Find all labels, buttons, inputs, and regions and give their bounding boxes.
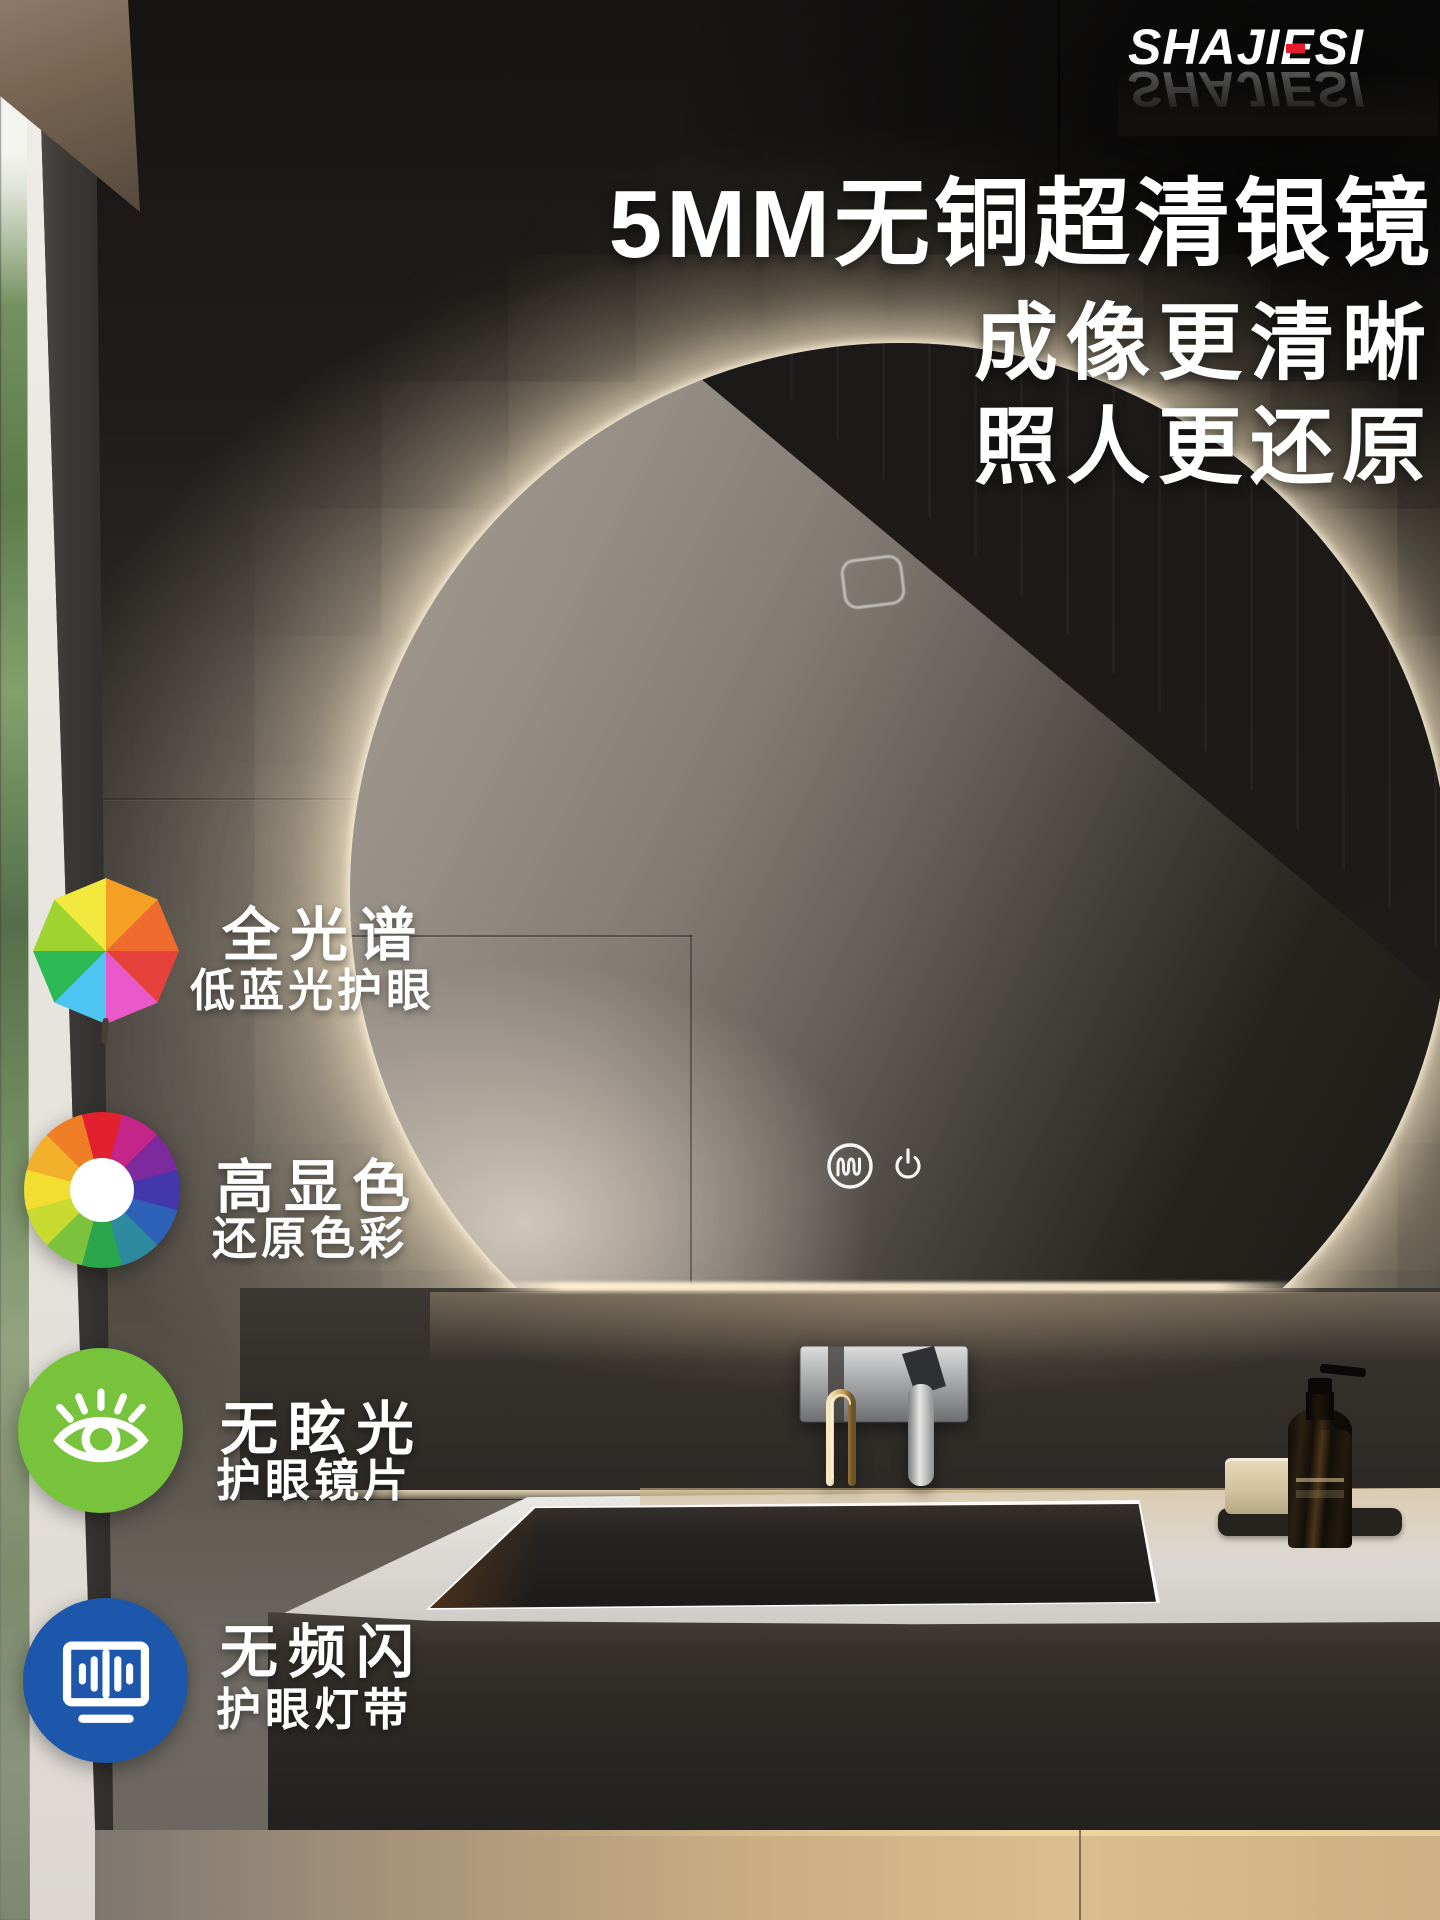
- soap-bottle-neck: [1306, 1392, 1334, 1420]
- flicker-free-screen-icon: [47, 1622, 165, 1740]
- wall-mounted-faucet: [790, 1338, 990, 1498]
- vanity-front-panel: [268, 1612, 1440, 1834]
- feature-subtitle-eye-protect-lens: 护眼镜片: [216, 1444, 412, 1509]
- product-poster: SHAJIESI SHAJIESI 5MM无铜超清银镜 成像更清晰 照人更还原 …: [0, 0, 1440, 1920]
- soap-bottle-pump: [1308, 1378, 1332, 1394]
- floor-seam: [1079, 1830, 1081, 1920]
- floor-band: [95, 1830, 1440, 1920]
- window-greenery-view: [0, 0, 32, 1920]
- power-icon[interactable]: [897, 1150, 919, 1177]
- sink-basin: [430, 1504, 1156, 1608]
- headline-subtitle-2: 照人更还原: [974, 380, 1434, 501]
- headline-title: 5MM无铜超清银镜: [609, 146, 1434, 285]
- feature-subtitle-eye-protect-strip: 护眼灯带: [216, 1673, 412, 1738]
- mirror-reflected-ceiling-light: [839, 553, 907, 610]
- eye-badge: [18, 1348, 183, 1513]
- spectrum-umbrella-icon: [33, 878, 179, 1024]
- mirror-bottom-glow-line: [480, 1282, 1320, 1292]
- monitor-badge: [23, 1598, 188, 1763]
- defog-icon[interactable]: [829, 1145, 871, 1187]
- led-mirror: [350, 343, 1440, 1443]
- soap-bottle-label: [1296, 1478, 1344, 1482]
- headline-subtitle-1: 成像更清晰: [974, 276, 1434, 397]
- feature-subtitle-low-blue-light: 低蓝光护眼: [190, 954, 435, 1019]
- brand-logo-reflection-fade: [1118, 76, 1438, 136]
- eye-icon: [42, 1372, 160, 1490]
- color-wheel-icon: [24, 1112, 180, 1268]
- mirror-touch-controls: [805, 1121, 995, 1211]
- feature-subtitle-true-color: 还原色彩: [212, 1202, 408, 1267]
- wall-tile-seam-horizontal: [88, 798, 356, 800]
- soap-bottle-body: [1288, 1430, 1352, 1548]
- soap-bottle-label-lower: [1296, 1490, 1344, 1498]
- faucet-handle-body: [908, 1384, 934, 1486]
- brand-logo: SHAJIESI SHAJIESI: [1128, 18, 1364, 118]
